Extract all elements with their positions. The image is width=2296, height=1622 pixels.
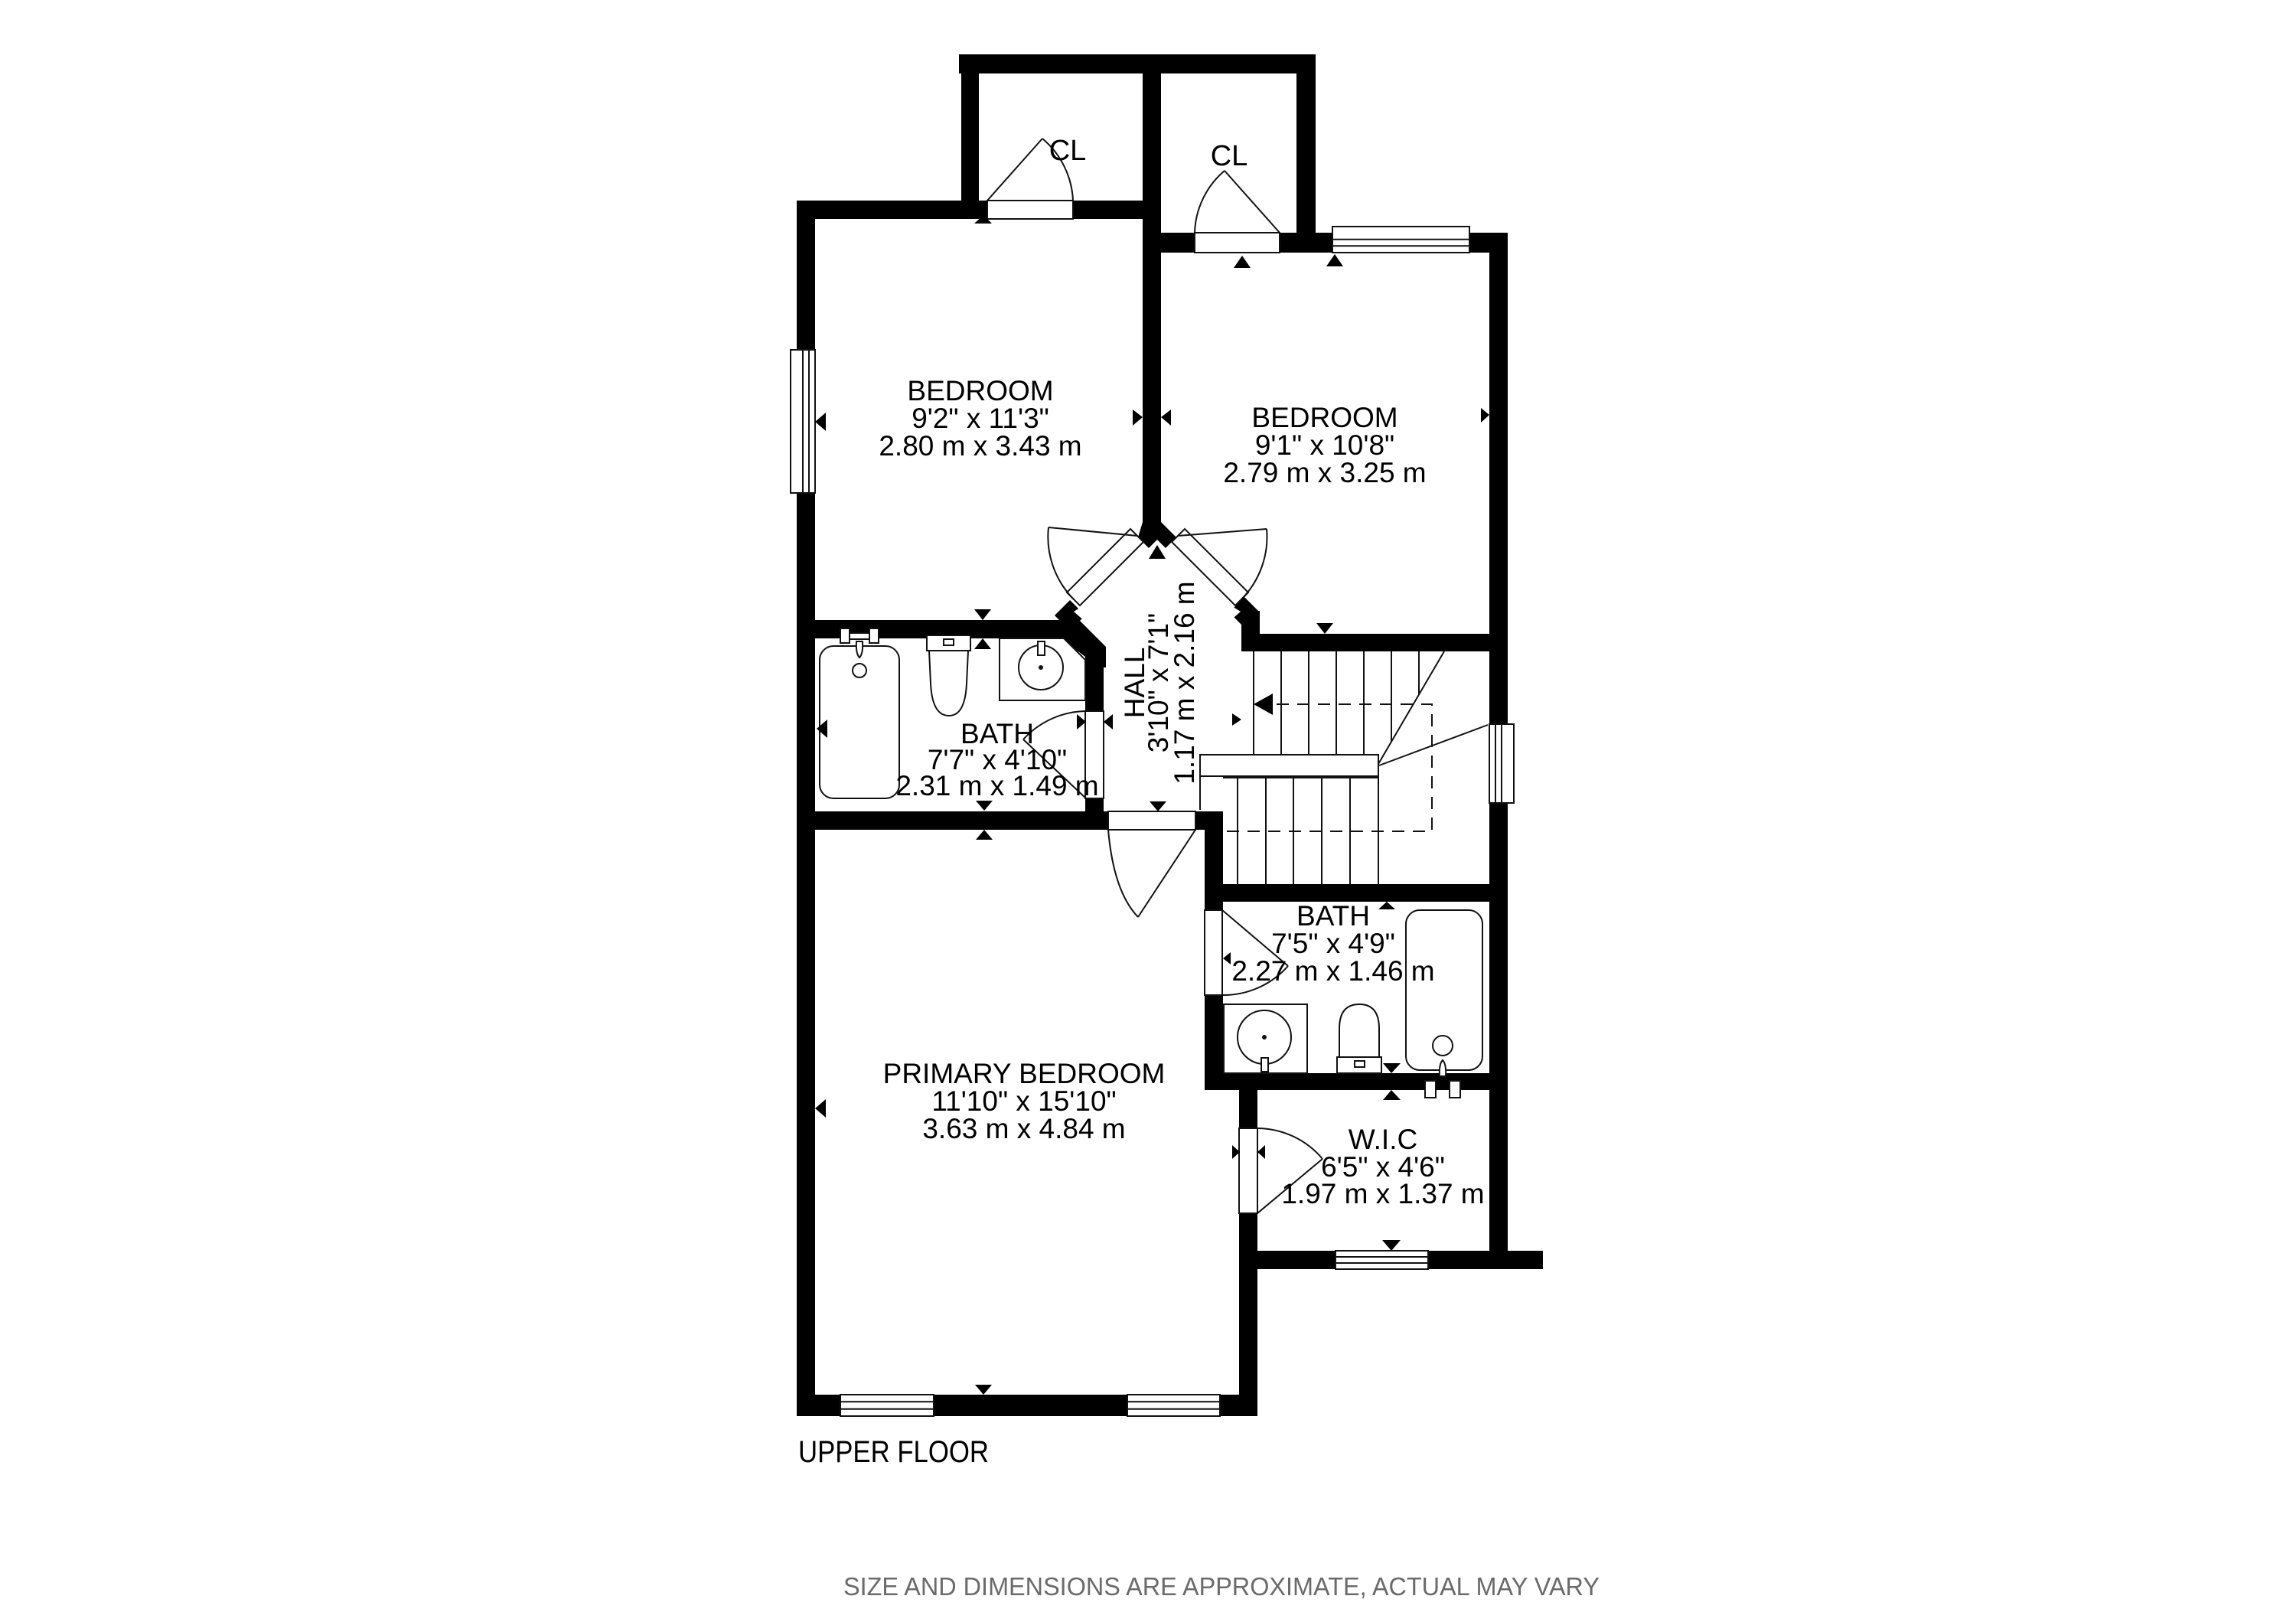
svg-text:2.27 m x 1.46 m: 2.27 m x 1.46 m (1231, 955, 1434, 987)
svg-text:CL: CL (1049, 135, 1087, 167)
svg-text:BEDROOM: BEDROOM (907, 375, 1053, 406)
svg-text:9'1" x 10'8": 9'1" x 10'8" (1255, 429, 1394, 461)
svg-text:1.97 m x 1.37 m: 1.97 m x 1.37 m (1281, 1178, 1484, 1209)
svg-text:2.80 m x 3.43 m: 2.80 m x 3.43 m (879, 430, 1081, 462)
svg-text:BATH: BATH (1296, 900, 1370, 932)
svg-text:1.17 m x 2.16 m: 1.17 m x 2.16 m (1169, 581, 1200, 784)
svg-text:2.31 m x 1.49 m: 2.31 m x 1.49 m (895, 770, 1098, 801)
svg-text:2.79 m x 3.25 m: 2.79 m x 3.25 m (1223, 457, 1426, 488)
svg-text:CL: CL (1211, 140, 1248, 172)
svg-text:UPPER FLOOR: UPPER FLOOR (798, 1435, 989, 1469)
svg-text:11'10" x 15'10": 11'10" x 15'10" (931, 1085, 1116, 1117)
svg-text:9'2" x 11'3": 9'2" x 11'3" (912, 403, 1049, 434)
svg-text:SIZE AND DIMENSIONS ARE APPROX: SIZE AND DIMENSIONS ARE APPROXIMATE, ACT… (843, 1572, 1600, 1601)
svg-text:3.63 m x 4.84 m: 3.63 m x 4.84 m (922, 1113, 1125, 1144)
svg-text:7'5" x 4'9": 7'5" x 4'9" (1271, 928, 1395, 959)
svg-text:W.I.C: W.I.C (1349, 1124, 1417, 1155)
svg-text:BEDROOM: BEDROOM (1251, 402, 1397, 433)
svg-text:PRIMARY BEDROOM: PRIMARY BEDROOM (883, 1058, 1166, 1089)
